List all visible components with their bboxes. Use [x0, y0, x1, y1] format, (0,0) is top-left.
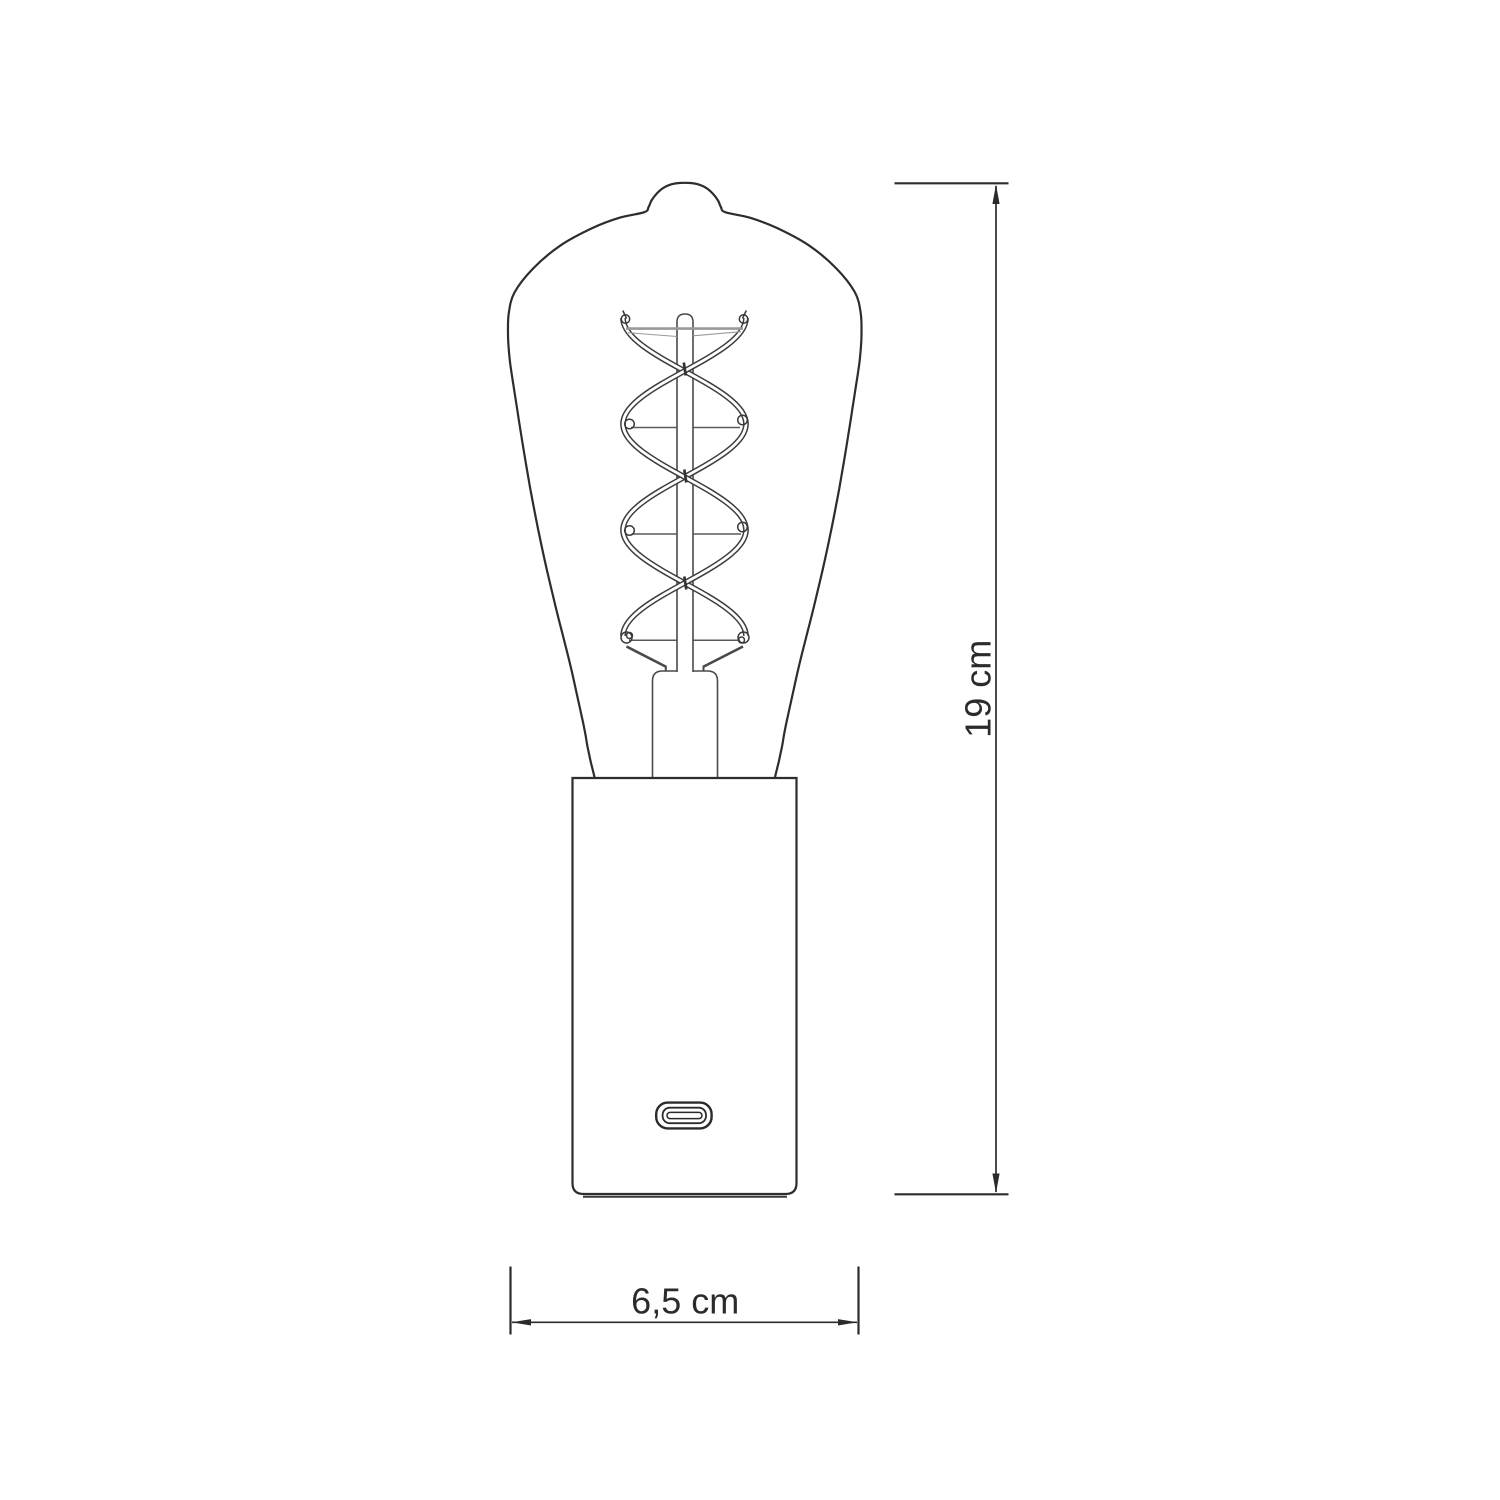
svg-text:6,5 cm: 6,5 cm — [631, 1281, 739, 1322]
svg-text:19 cm: 19 cm — [958, 640, 999, 738]
